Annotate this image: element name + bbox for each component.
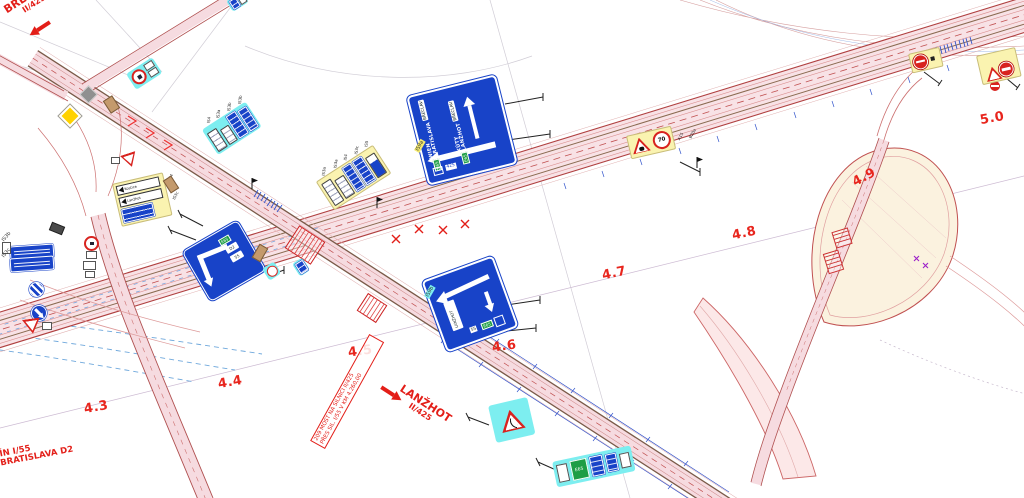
group-a-tag: IS4 (206, 117, 212, 124)
mini-plate (619, 451, 631, 468)
arrow-up-shaft (467, 105, 479, 139)
mini-sign (588, 455, 605, 477)
destination-text: LANŽHOT (448, 310, 459, 329)
long-arrow-shaft (444, 274, 490, 299)
group-a-tag: IS3b (226, 102, 232, 111)
group-b-tag: IS3a (332, 159, 338, 168)
curve-warning-icon (498, 407, 526, 433)
mini-sign (605, 453, 620, 473)
group-b-tag: IS4 (343, 154, 349, 161)
destination-box: LANŽHOT (443, 299, 464, 331)
striped-circle-sign (29, 282, 44, 297)
mini-plate (86, 251, 97, 259)
group-d-tag: A15 (676, 131, 684, 140)
plan-canvas: BŘECLAV II/425 LANŽHOT II/425 NÍN I/55 ,… (0, 0, 1024, 498)
mini-plate (42, 322, 52, 330)
mini-plate (85, 271, 95, 278)
prohibition-icon (84, 236, 99, 251)
mini-plate (556, 463, 570, 483)
col1-box: BŘECLAV (418, 99, 428, 121)
e65-badge-large: E65 (569, 458, 590, 481)
blue-badge (493, 314, 506, 327)
mini-plate (111, 157, 120, 164)
d2-badge: D2 (432, 166, 444, 176)
e65-badge: E65 (460, 152, 470, 165)
post-mark (930, 56, 935, 61)
down-arrow-head (485, 303, 497, 314)
route-425-badge: 425 (445, 163, 457, 171)
ramp-embankment (694, 298, 816, 479)
group-d-tag: B20a (687, 127, 696, 138)
group-a-tag: IS3b (237, 95, 243, 104)
no-entry-icon (911, 52, 929, 70)
mini-plate (83, 261, 96, 270)
bridge-deck-2 (357, 294, 386, 323)
group-b-tag: IS5 (364, 140, 370, 147)
group-b-tag: IS3a (321, 167, 327, 176)
arrow-sign-text: Lanžhot (127, 196, 141, 203)
e65-badge: E65 (480, 320, 493, 331)
group-b-tag: IS3c (353, 146, 359, 155)
col2-box: BŘECLAV (448, 100, 458, 122)
speed-limit-70-icon: 70 (651, 129, 673, 151)
roadworks-warning-icon (630, 136, 651, 155)
yield-sign (22, 317, 42, 334)
no-entry-icon (997, 60, 1015, 78)
route-55-badge: 55 (469, 325, 478, 333)
arrow-sign-text: Kostice (124, 185, 137, 192)
